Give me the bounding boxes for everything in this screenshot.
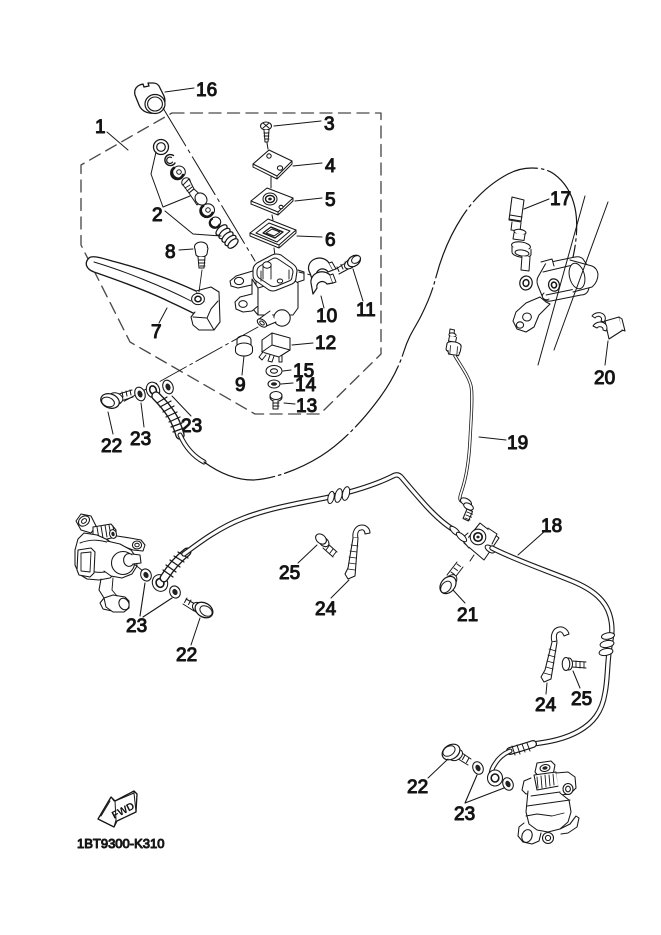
svg-text:6: 6 xyxy=(325,230,336,251)
svg-text:7: 7 xyxy=(151,322,162,343)
svg-text:23: 23 xyxy=(454,804,475,825)
svg-text:22: 22 xyxy=(101,436,122,457)
svg-text:23: 23 xyxy=(130,429,151,450)
svg-text:4: 4 xyxy=(325,156,336,177)
svg-text:24: 24 xyxy=(535,695,557,716)
svg-text:23: 23 xyxy=(126,616,147,637)
svg-text:12: 12 xyxy=(315,333,336,354)
svg-text:10: 10 xyxy=(316,306,337,327)
svg-text:22: 22 xyxy=(176,645,197,666)
svg-text:11: 11 xyxy=(356,300,376,321)
svg-text:25: 25 xyxy=(571,689,592,710)
svg-text:19: 19 xyxy=(507,433,528,454)
svg-text:1BT9300-K310: 1BT9300-K310 xyxy=(77,836,164,851)
svg-text:8: 8 xyxy=(165,242,176,263)
svg-text:20: 20 xyxy=(594,368,615,389)
svg-text:17: 17 xyxy=(550,189,571,210)
svg-text:16: 16 xyxy=(196,80,217,101)
svg-text:13: 13 xyxy=(296,396,317,417)
svg-text:5: 5 xyxy=(325,190,336,211)
svg-text:21: 21 xyxy=(457,605,478,626)
svg-text:9: 9 xyxy=(235,375,246,396)
svg-text:18: 18 xyxy=(541,516,562,537)
svg-text:14: 14 xyxy=(295,375,317,396)
svg-text:2: 2 xyxy=(152,205,163,226)
svg-text:1: 1 xyxy=(95,117,106,138)
svg-text:25: 25 xyxy=(279,563,300,584)
svg-text:22: 22 xyxy=(407,777,428,798)
svg-text:3: 3 xyxy=(324,114,335,135)
svg-text:24: 24 xyxy=(315,599,337,620)
